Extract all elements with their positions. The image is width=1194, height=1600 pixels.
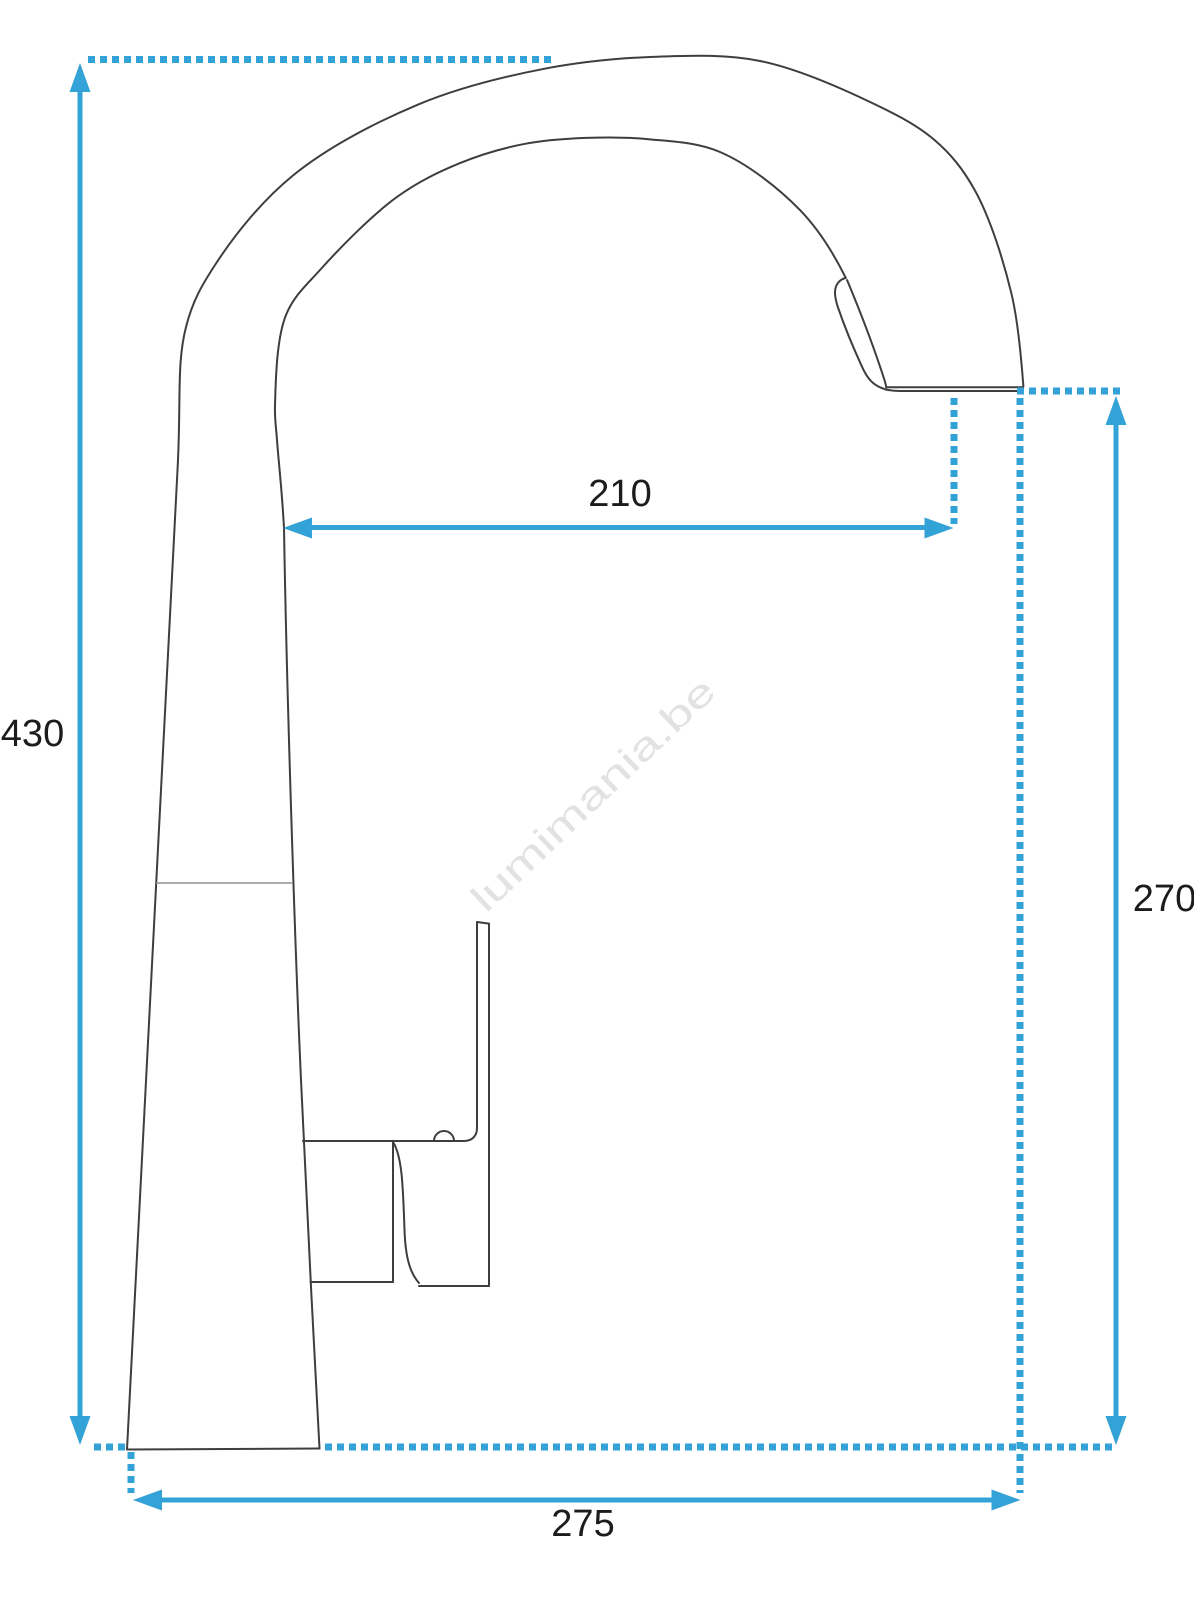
svg-text:275: 275: [551, 1503, 614, 1545]
svg-text:lumimania.be: lumimania.be: [463, 670, 724, 921]
svg-text:430: 430: [1, 713, 64, 755]
svg-text:210: 210: [588, 473, 651, 515]
svg-text:270: 270: [1133, 878, 1194, 920]
